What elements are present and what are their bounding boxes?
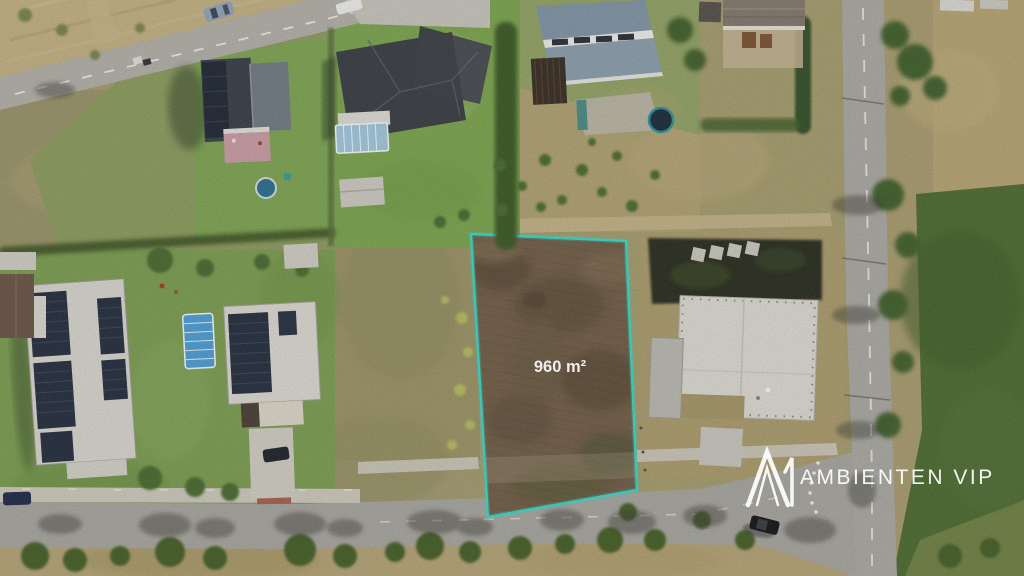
aerial-photo: 960 m² xyxy=(0,0,1024,576)
brand-name: AMBIENTEN VIP xyxy=(800,466,995,489)
grain-light xyxy=(0,0,1024,576)
aerial-photo-stage: 960 m² xyxy=(0,0,1024,576)
